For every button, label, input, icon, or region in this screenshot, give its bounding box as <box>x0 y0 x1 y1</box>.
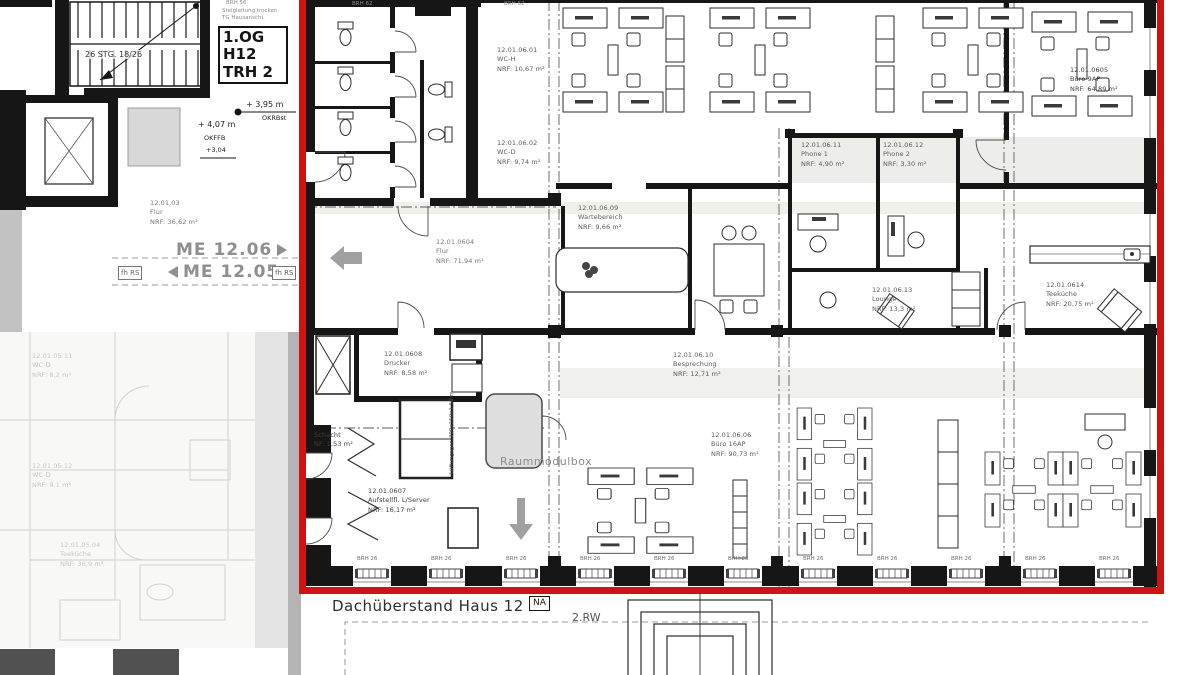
room-area: NRF: 13,3 m² <box>872 305 916 313</box>
room-name: Büro 9AP <box>1070 75 1100 83</box>
okrb-label: OKRBst <box>262 114 286 122</box>
brh-62-label: BRH 62 <box>504 1 524 8</box>
room-area: NRF: 9,1 m² <box>32 481 71 489</box>
escape-arrow-down-icon <box>509 498 533 540</box>
brh-26-label: BRH 26 <box>580 556 600 562</box>
room-name: WC-D <box>32 361 51 369</box>
me-1206-marker: ME 12.06 <box>176 240 287 260</box>
room-id: 12.01.06.13 <box>872 286 912 294</box>
room-id: 12.01.06.09 <box>578 204 618 212</box>
faded-adjacent-building <box>0 332 301 675</box>
brh-56-label: BRH 56 <box>226 0 246 7</box>
lueftung-label: Lüftungsger. 300x150x1,50 m <box>449 391 455 474</box>
room-name: Teeküche <box>1046 290 1077 298</box>
arrow-right-icon <box>277 244 287 256</box>
room-id: 12.01.0614 <box>1046 281 1084 289</box>
room-name: Lounge <box>872 295 896 303</box>
floorplan-canvas: 1.OG H12 TRH 2 BRH 56 Steigleitung trock… <box>0 0 1200 675</box>
room-id: 12.01.06.12 <box>883 141 923 149</box>
room-label-besprechung: 12.01.06.10 Besprechung NRF: 12,71 m² <box>673 351 721 379</box>
steigleitung-line1: Steigleitung trocken <box>222 8 277 14</box>
room-label-lounge: 12.01.06.13 Lounge NRF: 13,3 m² <box>872 286 916 314</box>
room-label-wc-h: 12.01.06.01 WC-H NRF: 10,67 m² <box>497 46 545 74</box>
brh-62-label: BRH 62 <box>352 1 372 8</box>
room-label-flur-left: 12.01.03 Flur NRF: 36,62 m² <box>150 199 198 227</box>
room-label-wartebereich: 12.01.06.09 Wartebereich NRF: 9,66 m² <box>578 204 623 232</box>
me-1205-marker: ME 12.05 <box>168 262 279 282</box>
room-id: 12.01.06.10 <box>673 351 713 359</box>
level-395-label: + 3,95 m <box>246 100 283 109</box>
title-box-trh2: 1.OG H12 TRH 2 <box>218 26 288 84</box>
room-area: NRF: 90,73 m² <box>711 450 759 458</box>
floorplan-drawing <box>0 0 1200 675</box>
room-area: NRF: 10,67 m² <box>497 65 545 73</box>
room-area: NRF: 3,30 m² <box>883 160 927 168</box>
me-1206-text: ME 12.06 <box>176 240 272 260</box>
title-line-stair: TRH 2 <box>223 63 273 81</box>
room-name: Phone 2 <box>883 150 910 158</box>
room-id: 12.01.06.11 <box>801 141 841 149</box>
dachueberstand-label: Dachüberstand Haus 12 <box>332 597 524 615</box>
room-label-flur-main: 12.01.0604 Flur NRF: 71,94 m² <box>436 238 484 266</box>
room-area: NRF: 71,94 m² <box>436 257 484 265</box>
room-label-aufzug: 12.01.0607 Aufstellfl. L/Server NRF: 16,… <box>368 487 430 515</box>
room-label-drucker: 12.01.0608 Drucker NRF: 8,58 m² <box>384 350 428 378</box>
brh-26-label: BRH 26 <box>1025 556 1045 562</box>
room-label-buero16: 12.01.06.06 Büro 16AP NRF: 90,73 m² <box>711 431 759 459</box>
shaft-duct <box>128 108 180 166</box>
brh-26-label: BRH 26 <box>728 556 748 562</box>
room-id: 12.01.05.11 <box>32 352 72 360</box>
level-304-label: +3,04 <box>206 146 226 154</box>
room-label-teekueche: 12.01.0614 Teeküche NRF: 20,75 m² <box>1046 281 1094 309</box>
room-label-wc-d: 12.01.06.02 WC-D NRF: 9,74 m² <box>497 139 541 167</box>
arrow-left-icon <box>168 266 178 278</box>
brh-26-label: BRH 26 <box>431 556 451 562</box>
furniture <box>316 8 1150 558</box>
room-id: 12.01.06.02 <box>497 139 537 147</box>
room-name: Phone 1 <box>801 150 828 158</box>
title-line-house: H12 <box>223 45 256 63</box>
room-id: 12.01.0608 <box>384 350 422 358</box>
room-area: NRF: 16,17 m² <box>368 506 416 514</box>
brh-row: BRH 26 BRH 26 BRH 26 BRH 26 BRH 26 BRH 2… <box>0 556 1200 566</box>
room-label-wc-h-left: 12.01.05.12 WC-D NRF: 9,1 m² <box>32 462 72 490</box>
room-id: 12.01.06.06 <box>711 431 751 439</box>
room-id: 12.01.0605 <box>1070 66 1108 74</box>
brh-26-label: BRH 26 <box>803 556 823 562</box>
brh-26-label: BRH 26 <box>506 556 526 562</box>
room-name: Schacht <box>314 431 341 439</box>
okffb-label: OKFFB <box>204 134 225 142</box>
brh-26-label: BRH 26 <box>654 556 674 562</box>
fh-rs-tag-right: fh RS <box>272 266 296 280</box>
room-name: Drucker <box>384 359 410 367</box>
room-id: 12.01.0607 <box>368 487 406 495</box>
room-name: Flur <box>150 208 163 216</box>
room-id: 12.01.05.04 <box>60 541 100 549</box>
brh-26-label: BRH 26 <box>877 556 897 562</box>
room-name: WC-D <box>32 471 51 479</box>
room-area: NF: 1,53 m² <box>314 440 353 448</box>
brh-26-label: BRH 26 <box>951 556 971 562</box>
escape-arrow-left-icon <box>330 246 362 270</box>
me-1205-text: ME 12.05 <box>183 262 279 282</box>
brh-26-label: BRH 26 <box>357 556 377 562</box>
raummodulbox-label: Raummodulbox <box>500 455 592 468</box>
room-name: Aufstellfl. L/Server <box>368 496 430 504</box>
room-name: Flur <box>436 247 449 255</box>
na-tag: NA <box>529 596 550 611</box>
room-label-phone1: 12.01.06.11 Phone 1 NRF: 4,90 m² <box>801 141 845 169</box>
room-name: Büro 16AP <box>711 440 746 448</box>
room-area: NRF: 4,90 m² <box>801 160 845 168</box>
room-area: NRF: 64,89 m² <box>1070 85 1118 93</box>
room-id: 12.01.03 <box>150 199 180 207</box>
room-area: NRF: 8,58 m² <box>384 369 428 377</box>
room-area: NRF: 36,62 m² <box>150 218 198 226</box>
level-407-label: + 4,07 m <box>198 120 235 129</box>
room-area: NRF: 12,71 m² <box>673 370 721 378</box>
room-name: WC-D <box>497 148 516 156</box>
room-name: WC-H <box>497 55 516 63</box>
brh-26-label: BRH 26 <box>1099 556 1119 562</box>
room-area: NRF: 8,2 m² <box>32 371 71 379</box>
room-label-wc-d-left: 12.01.05.11 WC-D NRF: 8,2 m² <box>32 352 72 380</box>
rw-label: 2.RW <box>572 611 601 624</box>
room-id: 12.01.06.01 <box>497 46 537 54</box>
room-label-buero9: 12.01.0605 Büro 9AP NRF: 64,89 m² <box>1070 66 1118 94</box>
room-name: Besprechung <box>673 360 717 368</box>
fh-rs-tag-left: fh RS <box>118 266 142 280</box>
room-label-schacht: Schacht NF: 1,53 m² <box>314 431 353 450</box>
room-id: 12.01.0604 <box>436 238 474 246</box>
room-area: NRF: 9,74 m² <box>497 158 541 166</box>
steigleitung-label: Steigleitung trocken TG Hausanschl. <box>222 8 277 22</box>
stair-count-label: 26 STG. 18/26 <box>84 50 143 59</box>
steigleitung-line2: TG Hausanschl. <box>222 15 265 21</box>
room-id: 12.01.05.12 <box>32 462 72 470</box>
title-line-floor: 1.OG <box>223 28 264 46</box>
room-area: NRF: 20,75 m² <box>1046 300 1094 308</box>
room-label-phone2: 12.01.06.12 Phone 2 NRF: 3,30 m² <box>883 141 927 169</box>
room-area: NRF: 9,66 m² <box>578 223 622 231</box>
room-name: Wartebereich <box>578 213 623 221</box>
